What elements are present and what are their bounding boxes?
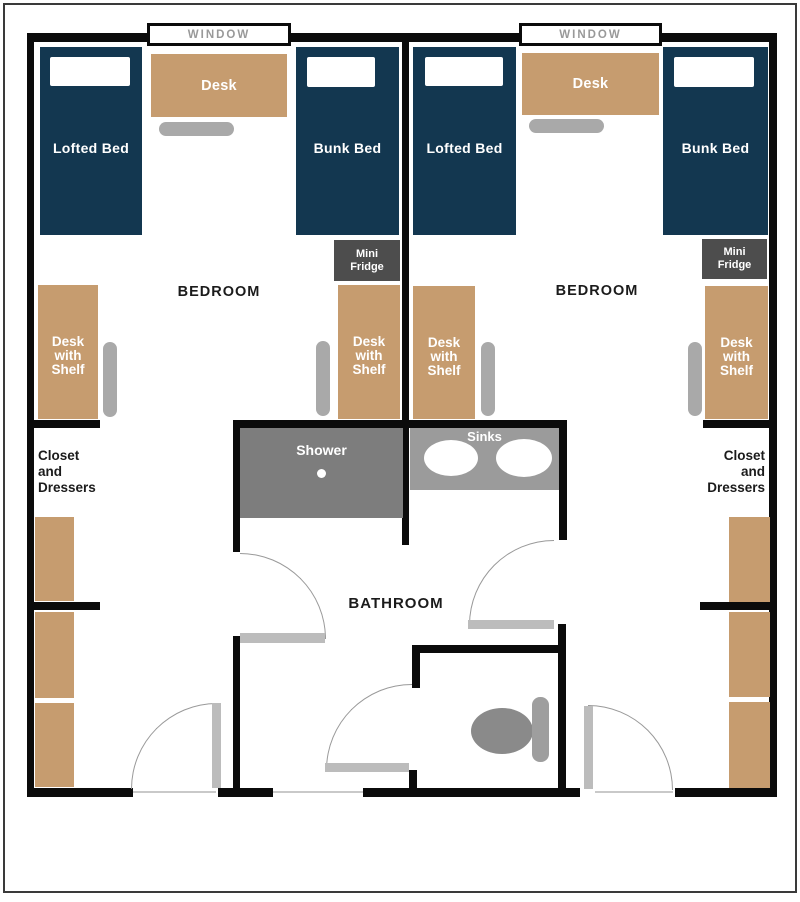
door-threshold [595, 791, 673, 793]
lofted-bed-left: Lofted Bed [40, 47, 142, 235]
lofted-bed-right: Lofted Bed [413, 47, 516, 235]
closet-label-line1: Closet [645, 448, 765, 464]
wall-bottom-seg2 [218, 788, 273, 797]
bedroom-right-label: BEDROOM [517, 283, 677, 299]
desk-right-bedroom: Desk [522, 53, 659, 115]
bathroom-label: BATHROOM [316, 595, 476, 612]
desk-chair-left-bedroom [159, 122, 234, 136]
bunk-bed-label: Bunk Bed [296, 140, 399, 156]
bathroom-door-left [240, 633, 325, 643]
dresser [35, 612, 74, 698]
desk-shelf-label-line2: with [55, 349, 82, 363]
window-label: WINDOW [188, 29, 250, 41]
desk-shelf-label-line3: Shelf [51, 363, 84, 377]
wall-left [27, 33, 34, 797]
window-label: WINDOW [559, 29, 621, 41]
desk-label: Desk [573, 76, 609, 92]
wall-toilet-left-upper [412, 645, 420, 688]
desk-chair-right-bedroom [529, 119, 604, 133]
desk-shelf-label-line1: Desk [52, 335, 84, 349]
pillow [425, 57, 503, 86]
shelf-desk-chair [481, 342, 495, 416]
wall-toilet-top [412, 645, 566, 653]
wall-closet-divider-left [30, 602, 100, 610]
mini-fridge-label-line2: Fridge [718, 259, 752, 272]
wall-bottom-seg3 [363, 788, 580, 797]
shower-label: Shower [240, 442, 403, 458]
sink-basin [424, 440, 478, 476]
pillow [307, 57, 375, 87]
lofted-bed-label: Lofted Bed [413, 140, 516, 156]
desk-with-shelf-left-1: Desk with Shelf [38, 285, 98, 419]
wall-bathroom-right-upper [559, 420, 567, 540]
pillow [674, 57, 754, 87]
bedroom-left-label: BEDROOM [139, 284, 299, 300]
shower-drain [317, 469, 326, 478]
closet-label-line3: Dressers [38, 480, 96, 496]
wall-top [27, 33, 777, 42]
floor-plan: WINDOW WINDOW Lofted Bed Desk Bunk Bed M… [0, 0, 800, 902]
closet-label-line2: and [38, 464, 96, 480]
dresser [729, 612, 770, 697]
bunk-bed-label: Bunk Bed [663, 140, 768, 156]
wall-bottom-seg4 [675, 788, 777, 797]
door-threshold [133, 791, 216, 793]
mini-fridge-label-line1: Mini [356, 248, 378, 261]
lofted-bed-label: Lofted Bed [40, 140, 142, 156]
wall-bathroom-left-lower [233, 636, 240, 788]
desk-shelf-label-line3: Shelf [427, 364, 460, 378]
mini-fridge-right: Mini Fridge [702, 239, 767, 279]
closet-label-line2: and [645, 464, 765, 480]
mini-fridge-left: Mini Fridge [334, 240, 400, 281]
toilet-room-door [325, 763, 409, 772]
shelf-desk-chair [316, 341, 330, 416]
bathroom-door-right [468, 620, 554, 629]
mini-fridge-label-line1: Mini [724, 246, 746, 259]
desk-shelf-label-line2: with [431, 350, 458, 364]
dresser [729, 702, 770, 788]
bunk-bed-right: Bunk Bed [663, 47, 768, 235]
wall-closet-right [703, 420, 777, 428]
window-left: WINDOW [147, 23, 291, 46]
desk-shelf-label-line1: Desk [428, 336, 460, 350]
pillow [50, 57, 130, 86]
desk-shelf-label-line1: Desk [353, 335, 385, 349]
desk-with-shelf-right-1: Desk with Shelf [413, 286, 475, 419]
wall-bathroom-left-upper [233, 420, 240, 552]
wall-closet-divider-right [700, 602, 777, 610]
desk-shelf-label-line3: Shelf [352, 363, 385, 377]
desk-shelf-label-line3: Shelf [720, 364, 753, 378]
desk-shelf-label-line2: with [723, 350, 750, 364]
wall-right [769, 33, 777, 797]
desk-label: Desk [201, 78, 237, 94]
wall-bottom-seg1 [27, 788, 133, 797]
bathroom-corridor-opening [273, 791, 363, 793]
shower: Shower [240, 428, 403, 518]
wall-bathroom-top [233, 420, 567, 428]
closet-left-label: Closet and Dressers [38, 448, 96, 496]
desk-with-shelf-right-2: Desk with Shelf [705, 286, 768, 419]
desk-shelf-label-line1: Desk [720, 336, 752, 350]
desk-left-bedroom: Desk [151, 54, 287, 117]
desk-shelf-label-line2: with [356, 349, 383, 363]
dresser [35, 517, 74, 601]
closet-label-line1: Closet [38, 448, 96, 464]
bunk-bed-left: Bunk Bed [296, 47, 399, 235]
desk-with-shelf-left-2: Desk with Shelf [338, 285, 400, 419]
entry-door-left [212, 703, 221, 788]
wall-center-divider [402, 42, 409, 545]
dresser [729, 517, 770, 602]
shelf-desk-chair [688, 342, 702, 416]
shelf-desk-chair [103, 342, 117, 417]
wall-toilet-left-stub [409, 770, 417, 797]
closet-label-line3: Dressers [645, 480, 765, 496]
window-right: WINDOW [519, 23, 662, 46]
sink-basin [496, 439, 552, 477]
entry-door-right [584, 706, 593, 789]
closet-right-label: Closet and Dressers [645, 448, 765, 496]
dresser [35, 703, 74, 787]
toilet-tank [532, 697, 549, 762]
toilet-bowl [471, 708, 533, 754]
mini-fridge-label-line2: Fridge [350, 261, 384, 274]
sink-counter: Sinks [410, 428, 559, 490]
wall-closet-left [27, 420, 100, 428]
